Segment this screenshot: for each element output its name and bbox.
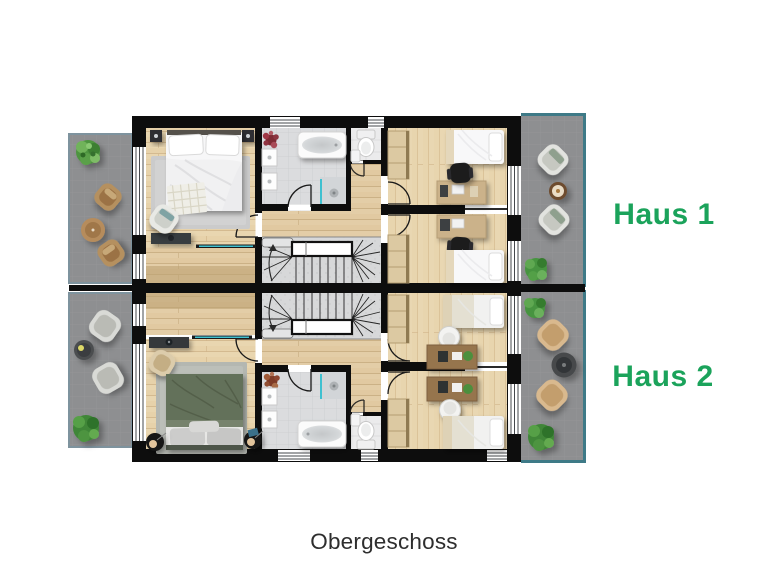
- svg-text:Obergeschoss: Obergeschoss: [310, 529, 457, 554]
- svg-text:Haus 2: Haus 2: [612, 360, 713, 393]
- svg-text:Haus 1: Haus 1: [613, 198, 714, 231]
